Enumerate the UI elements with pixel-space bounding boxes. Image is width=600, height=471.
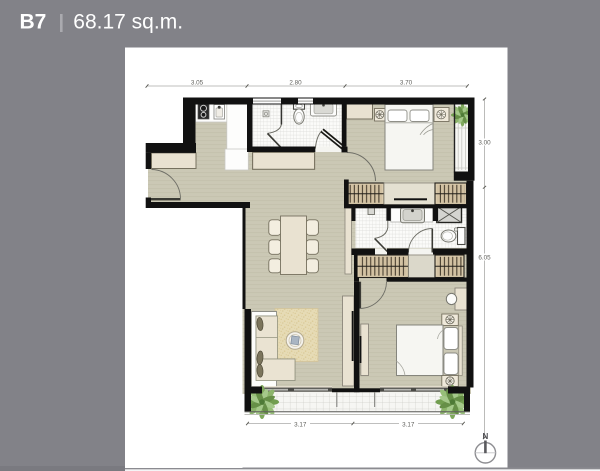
svg-text:B7: B7 (20, 11, 47, 34)
svg-text:68.17 sq.m.: 68.17 sq.m. (73, 11, 183, 34)
svg-text:N: N (483, 432, 489, 441)
svg-text:2.80: 2.80 (289, 80, 302, 87)
svg-text:3.70: 3.70 (400, 80, 413, 87)
svg-text:3.05: 3.05 (191, 80, 204, 87)
svg-text:3.00: 3.00 (478, 140, 491, 147)
svg-text:3.17: 3.17 (402, 421, 415, 428)
svg-text:6.05: 6.05 (478, 255, 491, 262)
svg-text:3.17: 3.17 (294, 421, 307, 428)
